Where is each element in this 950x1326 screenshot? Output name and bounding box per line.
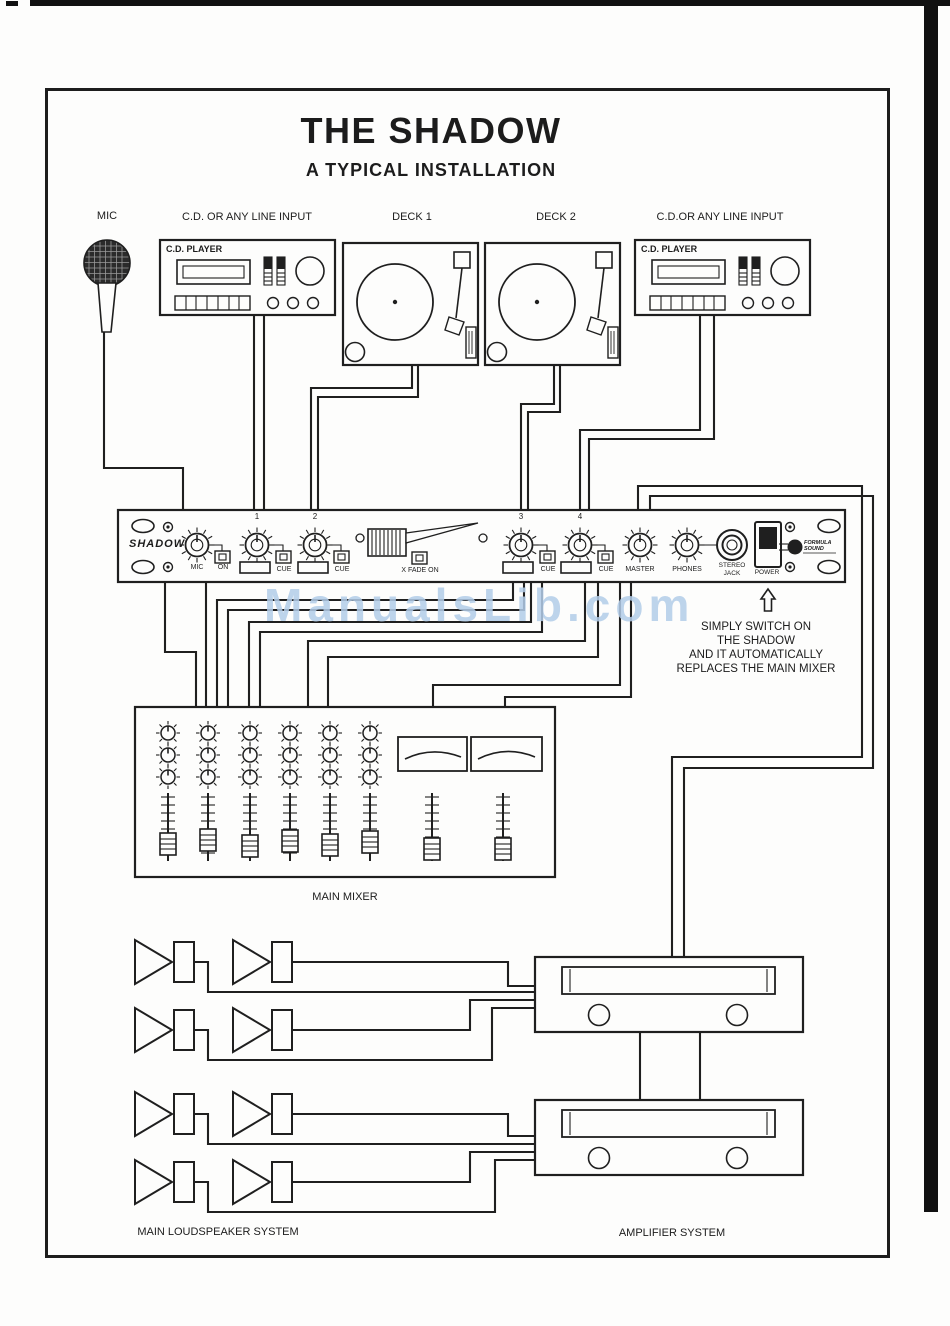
screw-icon — [164, 523, 173, 532]
page-subtitle: A TYPICAL INSTALLATION — [306, 160, 556, 181]
loudspeaker-system — [135, 940, 292, 1204]
screw-icon — [786, 523, 795, 532]
amplifier-1 — [535, 957, 803, 1032]
turntable-deck1 — [343, 243, 478, 365]
cd-left-label: C.D. OR ANY LINE INPUT — [182, 211, 312, 224]
on-switch — [215, 551, 230, 563]
amplifier-caption: AMPLIFIER SYSTEM — [619, 1227, 725, 1240]
deck2-label: DECK 2 — [536, 211, 576, 224]
mixer-brand: SHADOW — [129, 538, 185, 551]
main-mixer-caption: MAIN MIXER — [312, 891, 377, 904]
xfade-label: X FADE ON — [401, 567, 438, 575]
on-label: ON — [218, 564, 229, 572]
cue1-label: CUE — [277, 566, 292, 574]
turntable-deck2 — [485, 243, 620, 365]
master-label: MASTER — [625, 566, 654, 574]
microphone-graphic — [84, 240, 130, 332]
channel1-number: 1 — [255, 512, 259, 521]
mic-knob-label: MIC — [191, 564, 204, 572]
mic-handle — [98, 283, 116, 332]
screw-icon — [164, 563, 173, 572]
amplifier-2 — [535, 1100, 803, 1175]
cue-switch-4 — [598, 551, 613, 563]
cue4-label: CUE — [599, 566, 614, 574]
cd-player-left-name: C.D. PLAYER — [166, 244, 222, 254]
mic-label: MIC — [97, 210, 117, 223]
cd-right-label: C.D.OR ANY LINE INPUT — [657, 211, 784, 224]
cue3-label: CUE — [541, 566, 556, 574]
channel4-number: 4 — [578, 512, 582, 521]
power-switch — [755, 522, 781, 567]
manualslib-watermark: ManualsLib.com — [264, 578, 694, 632]
cd-player-right-name: C.D. PLAYER — [641, 244, 697, 254]
arrow-up-icon — [761, 589, 775, 611]
power-label: POWER — [755, 569, 780, 576]
cables-amp-link — [640, 1031, 700, 1100]
note-text: SIMPLY SWITCH ON THE SHADOW AND IT AUTOM… — [677, 620, 836, 676]
phones-label: PHONES — [672, 566, 702, 574]
deck1-label: DECK 1 — [392, 211, 432, 224]
scanned-manual-page: THE SHADOW A TYPICAL INSTALLATION MIC C.… — [0, 0, 950, 1326]
cue2-label: CUE — [335, 566, 350, 574]
cue-switch-1 — [276, 551, 291, 563]
main-mixer-unit — [135, 707, 555, 877]
channel3-number: 3 — [519, 512, 523, 521]
logo-text: FORMULA SOUND — [804, 540, 832, 552]
xfade-on-switch — [412, 552, 427, 564]
screw-icon — [786, 563, 795, 572]
stereo-jack-label: STEREO JACK — [719, 562, 746, 577]
channel2-number: 2 — [313, 512, 317, 521]
cue-switch-3 — [540, 551, 555, 563]
page-title: THE SHADOW — [301, 110, 562, 151]
cue-switch-2 — [334, 551, 349, 563]
loudspeaker-caption: MAIN LOUDSPEAKER SYSTEM — [137, 1226, 298, 1239]
